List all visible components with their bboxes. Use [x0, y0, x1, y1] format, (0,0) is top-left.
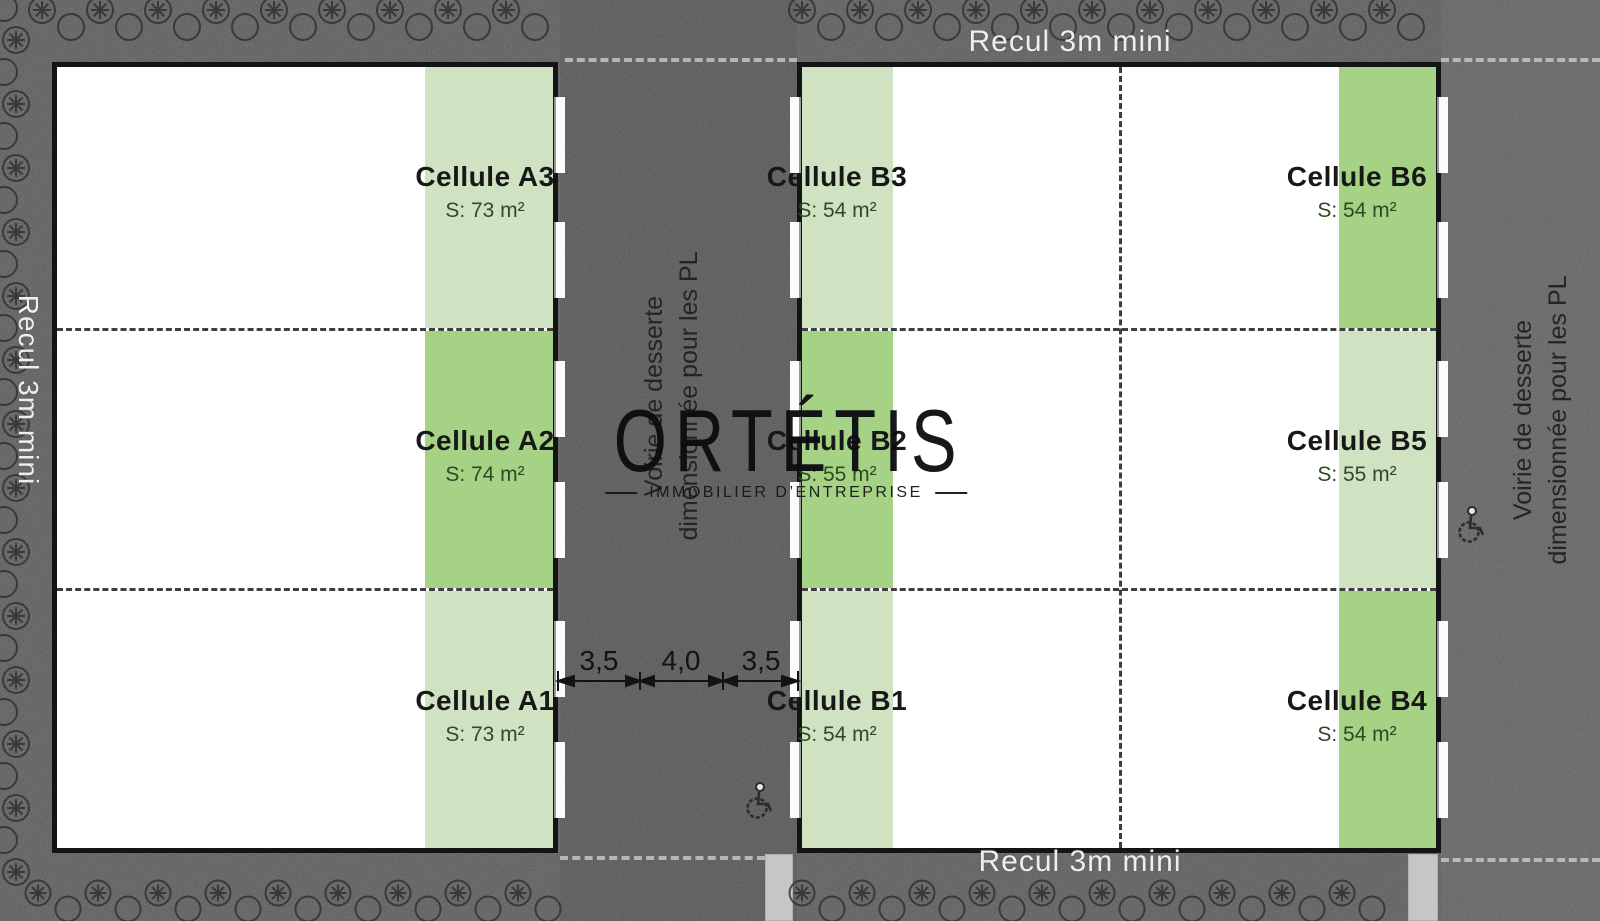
tree-icon: [446, 881, 471, 906]
cell-b3-label: Cellule B3 S: 54 m²: [742, 161, 932, 223]
tree-icon: [1224, 14, 1250, 40]
door-opening: [554, 222, 565, 298]
tree-icon: [0, 123, 17, 149]
tree-icon: [850, 881, 875, 906]
door-opening: [790, 361, 801, 437]
tree-icon: [3, 91, 29, 117]
building-a: Cellule A3 S: 73 m² Cellule A2 S: 74 m² …: [52, 62, 558, 853]
tree-icon: [348, 14, 374, 40]
door-opening: [1437, 742, 1448, 818]
tree-icon: [319, 0, 345, 23]
tree-icon: [1398, 14, 1424, 40]
dimension-value: 3,5: [580, 645, 619, 676]
tree-icon: [3, 795, 29, 821]
cell-b1: Cellule B1 S: 54 m²: [802, 588, 1119, 848]
tree-icon: [236, 897, 261, 921]
tree-icon: [880, 897, 905, 921]
service-road-label-right: Voirie de desserte dimensionnée pour les…: [1506, 275, 1576, 564]
setback-label-left: Recul 3m mini: [12, 295, 44, 485]
service-road-line1: Voirie de desserte: [1506, 275, 1541, 564]
dimension-value: 4,0: [662, 645, 701, 676]
tree-icon: [356, 897, 381, 921]
door-opening: [1437, 97, 1448, 173]
tree-icon: [290, 14, 316, 40]
tree-icon: [1150, 881, 1175, 906]
tree-icon: [1282, 14, 1308, 40]
door-opening: [790, 621, 801, 697]
door-opening: [1437, 222, 1448, 298]
cell-a2: Cellule A2 S: 74 m²: [57, 328, 553, 588]
door-opening: [790, 742, 801, 818]
tree-icon: [1311, 0, 1337, 23]
crosswalk-strip: [1408, 854, 1438, 921]
cell-name: Cellule B5: [1262, 425, 1452, 457]
cell-b5: Cellule B5 S: 55 m²: [1122, 328, 1436, 588]
tree-icon: [1120, 897, 1145, 921]
tree-icon: [789, 0, 815, 23]
tree-icon: [506, 881, 531, 906]
tree-icon: [87, 0, 113, 23]
cell-name: Cellule B2: [742, 425, 932, 457]
tree-icon: [176, 897, 201, 921]
door-opening: [554, 97, 565, 173]
tree-icon: [1000, 897, 1025, 921]
tree-icon: [940, 897, 965, 921]
cell-area: S: 54 m²: [742, 723, 932, 747]
tree-icon: [0, 187, 17, 213]
tree-icon: [116, 14, 142, 40]
tree-icon: [1253, 0, 1279, 23]
tree-icon: [1079, 0, 1105, 23]
tree-icon: [266, 881, 291, 906]
tree-icon: [58, 14, 84, 40]
tree-icon: [3, 539, 29, 565]
tree-icon: [0, 59, 17, 85]
building-b: Cellule B3 S: 54 m² Cellule B2 S: 55 m²: [797, 62, 1441, 853]
door-opening: [554, 621, 565, 697]
door-opening: [790, 482, 801, 558]
tree-icon: [232, 14, 258, 40]
service-road-line2: dimensionnée pour les PL: [672, 251, 707, 540]
cell-b4: Cellule B4 S: 54 m²: [1122, 588, 1436, 848]
tree-icon: [476, 897, 501, 921]
cell-a3: Cellule A3 S: 73 m²: [57, 67, 553, 328]
tree-icon: [386, 881, 411, 906]
tree-icon: [1137, 0, 1163, 23]
tree-icon: [1030, 881, 1055, 906]
tree-icon: [326, 881, 351, 906]
cell-b5-label: Cellule B5 S: 55 m²: [1262, 425, 1452, 487]
tree-icon: [1360, 897, 1385, 921]
tree-icon: [145, 0, 171, 23]
door-opening: [790, 222, 801, 298]
cell-name: Cellule A3: [405, 161, 565, 193]
tree-icon: [3, 859, 29, 885]
tree-icon: [1300, 897, 1325, 921]
tree-icon: [206, 881, 231, 906]
tree-icon: [1210, 881, 1235, 906]
tree-icon: [86, 881, 111, 906]
tree-icon: [3, 667, 29, 693]
cell-b6-label: Cellule B6 S: 54 m²: [1262, 161, 1452, 223]
tree-icon: [818, 14, 844, 40]
tree-icon: [3, 27, 29, 53]
cell-area: S: 54 m²: [1262, 199, 1452, 223]
tree-icon: [1270, 881, 1295, 906]
road-edge-line: [560, 856, 765, 860]
tree-icon: [3, 731, 29, 757]
cell-area: S: 73 m²: [405, 199, 565, 223]
door-opening: [554, 742, 565, 818]
crosswalk-strip: [765, 854, 793, 921]
road-edge-line: [1441, 58, 1600, 62]
cell-area: S: 55 m²: [742, 463, 932, 487]
site-plan: Cellule A3 S: 73 m² Cellule A2 S: 74 m² …: [0, 0, 1600, 921]
tree-icon: [174, 14, 200, 40]
cell-b2: Cellule B2 S: 55 m²: [802, 328, 1119, 588]
tree-icon: [0, 571, 17, 597]
service-road-label-middle: Voirie de desserte dimensionnée pour les…: [637, 251, 707, 540]
road-edge-line: [565, 58, 797, 62]
tree-icon: [56, 897, 81, 921]
tree-icon: [0, 251, 17, 277]
setback-label-top: Recul 3m mini: [930, 25, 1210, 59]
cell-name: Cellule B4: [1262, 685, 1452, 717]
tree-icon: [261, 0, 287, 23]
tree-icon: [876, 14, 902, 40]
tree-icon: [0, 635, 17, 661]
door-opening: [554, 361, 565, 437]
tree-icon: [1330, 881, 1355, 906]
tree-icon: [1369, 0, 1395, 23]
cell-name: Cellule B3: [742, 161, 932, 193]
cell-b3: Cellule B3 S: 54 m²: [802, 67, 1119, 328]
tree-icon: [406, 14, 432, 40]
cell-name: Cellule B6: [1262, 161, 1452, 193]
cell-a3-label: Cellule A3 S: 73 m²: [405, 161, 565, 223]
cell-a1-label: Cellule A1 S: 73 m²: [405, 685, 565, 747]
tree-icon: [435, 0, 461, 23]
building-b-left-bay: Cellule B3 S: 54 m² Cellule B2 S: 55 m²: [802, 67, 1119, 848]
tree-icon: [1180, 897, 1205, 921]
tagline-rule: [605, 492, 637, 494]
tree-icon: [910, 881, 935, 906]
cell-a1: Cellule A1 S: 73 m²: [57, 588, 553, 848]
tree-icon: [296, 897, 321, 921]
tree-icon: [847, 0, 873, 23]
cell-name: Cellule A2: [405, 425, 565, 457]
cell-b1-label: Cellule B1 S: 54 m²: [742, 685, 932, 747]
tree-icon: [1195, 0, 1221, 23]
cell-area: S: 54 m²: [1262, 723, 1452, 747]
road-edge-line: [1441, 858, 1600, 862]
wheelchair-icon: [740, 780, 778, 824]
tree-icon: [1021, 0, 1047, 23]
tree-icon: [1240, 897, 1265, 921]
tree-icon: [536, 897, 561, 921]
tree-icon: [963, 0, 989, 23]
service-road-line2: dimensionnée pour les PL: [1541, 275, 1576, 564]
tree-icon: [3, 155, 29, 181]
tree-icon: [3, 219, 29, 245]
tree-icon: [1060, 897, 1085, 921]
tree-icon: [416, 897, 441, 921]
tree-icon: [3, 603, 29, 629]
tree-icon: [0, 699, 17, 725]
tree-icon: [464, 14, 490, 40]
tree-icon: [0, 763, 17, 789]
tree-icon: [522, 14, 548, 40]
tree-icon: [0, 0, 17, 21]
tree-icon: [790, 881, 815, 906]
tree-icon: [0, 827, 17, 853]
cell-b4-label: Cellule B4 S: 54 m²: [1262, 685, 1452, 747]
cell-area: S: 73 m²: [405, 723, 565, 747]
cell-area: S: 54 m²: [742, 199, 932, 223]
cell-name: Cellule B1: [742, 685, 932, 717]
building-b-right-bay: Cellule B6 S: 54 m² Cellule B5 S: 55 m²: [1119, 67, 1436, 848]
service-road-line1: Voirie de desserte: [637, 251, 672, 540]
cell-name: Cellule A1: [405, 685, 565, 717]
tree-icon: [820, 897, 845, 921]
tree-icon: [29, 0, 55, 23]
tree-icon: [146, 881, 171, 906]
tree-icon: [905, 0, 931, 23]
door-opening: [1437, 361, 1448, 437]
tree-icon: [1340, 14, 1366, 40]
door-opening: [1437, 621, 1448, 697]
tree-icon: [26, 881, 51, 906]
tree-icon: [970, 881, 995, 906]
cell-area: S: 74 m²: [405, 463, 565, 487]
wheelchair-icon: [1452, 504, 1490, 548]
cell-a2-label: Cellule A2 S: 74 m²: [405, 425, 565, 487]
tree-icon: [377, 0, 403, 23]
tree-icon: [1090, 881, 1115, 906]
tree-icon: [116, 897, 141, 921]
dimension-value: 3,5: [742, 645, 781, 676]
cell-b2-label: Cellule B2 S: 55 m²: [742, 425, 932, 487]
setback-label-bottom: Recul 3m mini: [940, 845, 1220, 879]
cell-area: S: 55 m²: [1262, 463, 1452, 487]
door-opening: [1437, 482, 1448, 558]
tree-icon: [0, 507, 17, 533]
door-opening: [790, 97, 801, 173]
door-opening: [554, 482, 565, 558]
tree-icon: [493, 0, 519, 23]
cell-b6: Cellule B6 S: 54 m²: [1122, 67, 1436, 328]
tree-icon: [203, 0, 229, 23]
